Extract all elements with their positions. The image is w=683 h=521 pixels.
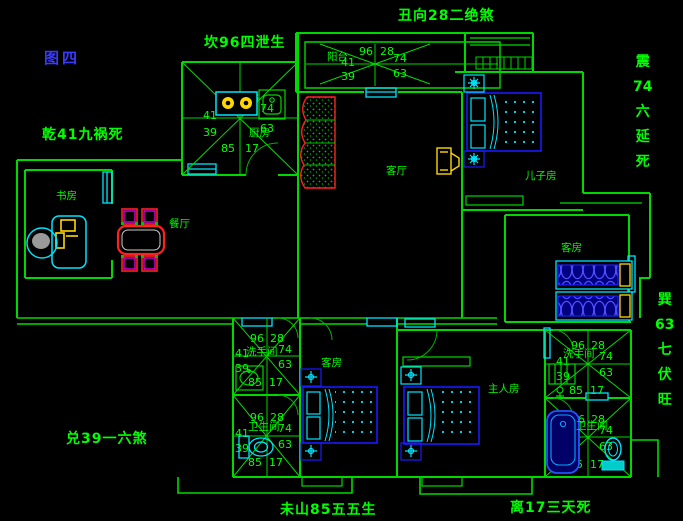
svg-text:63: 63 [278, 438, 292, 451]
wardrobe-icon [476, 57, 532, 69]
zhen-char: 74 [633, 75, 652, 100]
room-label-living: 客厅 [386, 163, 407, 178]
tv-icon [437, 148, 459, 174]
svg-text:74: 74 [599, 350, 613, 363]
svg-text:39: 39 [556, 370, 570, 383]
xun-char: 伏 [658, 363, 672, 388]
plants-icon [301, 97, 335, 188]
room-label-wash-left: 洗手间 [246, 344, 278, 359]
single-bed-2-icon [556, 292, 632, 320]
annotation-chou: 丑向28二绝煞 [398, 5, 494, 25]
room-label-study: 书房 [56, 188, 77, 203]
son-shelf-icon [466, 196, 523, 205]
svg-text:41: 41 [203, 109, 217, 122]
svg-text:85: 85 [569, 384, 583, 397]
room-label-guest-right: 客房 [561, 240, 582, 255]
svg-text:63: 63 [278, 358, 292, 371]
room-label-guest-bottom: 客房 [321, 355, 342, 370]
svg-text:63: 63 [393, 67, 407, 80]
svg-text:41: 41 [235, 427, 249, 440]
guest-bed-icon [303, 387, 377, 443]
room-label-wash-right: 洗手间 [563, 346, 595, 361]
svg-text:85: 85 [221, 142, 235, 155]
bathtub-icon [547, 411, 579, 473]
room-label-dining: 餐厅 [169, 216, 190, 231]
annotation-xun-vertical: 巽 63 七 伏 旺 [655, 288, 674, 413]
svg-text:39: 39 [341, 70, 355, 83]
floorplan-canvas: 9628 4174 3963 8517 9628 4174 3963 9628 … [0, 0, 683, 521]
room-label-balcony: 阳台 [327, 49, 348, 64]
xun-char: 七 [658, 338, 672, 363]
room-label-son: 儿子房 [525, 168, 557, 183]
stove-icon [216, 92, 257, 115]
room-label-master: 主人房 [488, 381, 520, 396]
zhen-char: 死 [636, 150, 650, 175]
svg-text:17: 17 [245, 142, 259, 155]
svg-text:17: 17 [269, 456, 283, 469]
annotation-qian: 乾41九祸死 [42, 124, 123, 144]
annotation-zhen-vertical: 震 74 六 延 死 [633, 50, 652, 175]
svg-text:63: 63 [599, 366, 613, 379]
son-bed-icon [467, 93, 541, 151]
xun-char: 旺 [658, 388, 672, 413]
xun-char: 巽 [658, 288, 672, 313]
svg-text:39: 39 [235, 442, 249, 455]
annotation-wei: 未山85五五生 [280, 499, 376, 519]
svg-text:39: 39 [203, 126, 217, 139]
single-bed-1-icon [556, 261, 632, 289]
svg-text:74: 74 [278, 343, 292, 356]
svg-text:74: 74 [260, 102, 274, 115]
zhen-char: 六 [636, 100, 650, 125]
room-label-toilet-right: 卫生间 [576, 418, 608, 433]
figure-label: 图四 [44, 47, 80, 68]
svg-text:85: 85 [248, 456, 262, 469]
dining-table-icon [118, 226, 164, 254]
room-label-kitchen: 厨房 [249, 125, 270, 140]
zhen-char: 延 [636, 125, 650, 150]
xun-char: 63 [655, 313, 674, 338]
svg-text:28: 28 [380, 45, 394, 58]
master-shelf-icon [403, 357, 470, 366]
master-bed-icon [404, 387, 479, 444]
annotation-li: 离17三天死 [510, 497, 591, 517]
annotation-dui: 兑39一六煞 [66, 428, 147, 448]
svg-text:63: 63 [599, 440, 613, 453]
svg-text:74: 74 [278, 422, 292, 435]
svg-text:17: 17 [269, 376, 283, 389]
room-label-toilet-left: 卫生间 [248, 419, 280, 434]
zhen-char: 震 [636, 50, 650, 75]
svg-text:96: 96 [359, 45, 373, 58]
svg-text:17: 17 [590, 384, 604, 397]
annotation-kan: 坎96四泄生 [204, 32, 285, 52]
svg-text:74: 74 [393, 52, 407, 65]
